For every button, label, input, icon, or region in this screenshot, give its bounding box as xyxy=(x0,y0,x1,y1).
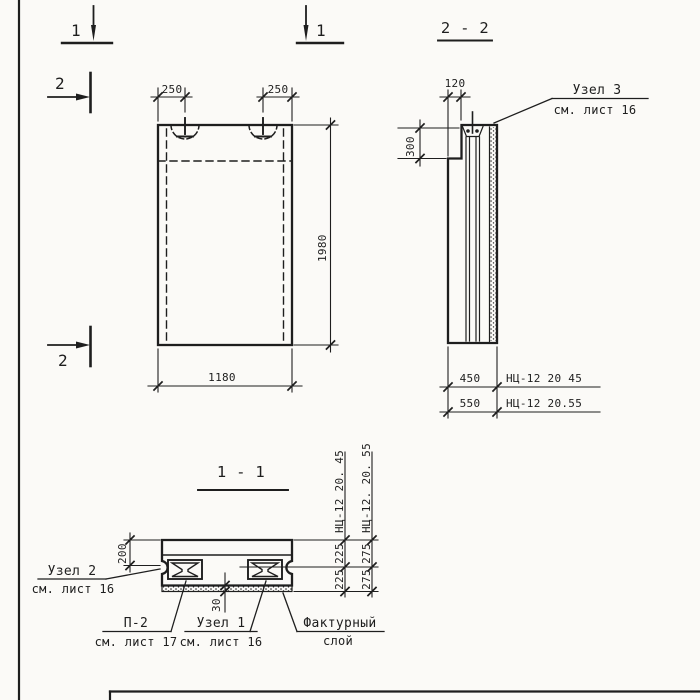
lifting-loop-right xyxy=(249,118,277,139)
front-view-dim-1180: 1180 xyxy=(148,349,302,392)
callout-node-2-ref: см. лист 16 xyxy=(32,582,115,596)
col-b-dim-1: 275 xyxy=(360,543,373,564)
channel-right xyxy=(248,560,282,579)
callout-p2-ref: см. лист 17 xyxy=(95,635,178,649)
section-2-2-title: 2 - 2 xyxy=(441,19,489,37)
callout-node-1-title: Узел 1 xyxy=(197,616,246,631)
callout-node-2: Узел 2 см. лист 16 xyxy=(32,564,160,596)
dim-1980-value: 1980 xyxy=(316,234,329,262)
section-marker-2-bottom-label: 2 xyxy=(58,351,68,370)
callout-node-3-title: Узел 3 xyxy=(573,83,622,98)
dim-450-value: 450 xyxy=(460,372,481,385)
callout-facing-layer: Фактурный слой xyxy=(283,593,384,648)
callout-facing-ref: слой xyxy=(323,634,353,648)
col-a-dim-2: 225 xyxy=(333,569,346,590)
front-view-hidden-edges xyxy=(158,129,292,343)
dim-120-value: 120 xyxy=(445,77,466,90)
col-a-dim-1: 225 xyxy=(333,543,346,564)
channel-left xyxy=(168,560,202,579)
section-marker-1-left: 1 xyxy=(62,6,112,43)
section-marker-1-left-label: 1 xyxy=(71,21,81,40)
section-2-2: 2 - 2 120 300 xyxy=(398,19,648,418)
dim-250-left-value: 250 xyxy=(162,83,183,96)
front-view-dim-250-left: 250 xyxy=(151,83,192,121)
lifting-loop-left xyxy=(171,118,199,139)
callout-facing-title: Фактурный xyxy=(303,616,376,631)
section-1-1: 1 - 1 200 30 xyxy=(32,443,384,649)
drawing-sheet: 1 1 2 2 xyxy=(0,0,700,700)
section-1-1-dim-30: 30 xyxy=(210,573,229,612)
section-1-1-dim-200: 200 xyxy=(116,533,160,572)
front-view: 250 250 1980 1180 xyxy=(148,83,338,392)
section-2-2-dim-rows: 450 НЦ-12 20 45 550 НЦ-12 20.55 xyxy=(440,347,600,418)
front-view-dim-250-right: 250 xyxy=(257,83,299,121)
dim-250-right-value: 250 xyxy=(268,83,289,96)
front-view-dim-1980: 1980 xyxy=(294,118,338,352)
section-marker-2-top: 2 xyxy=(48,73,91,112)
section-marker-2-top-label: 2 xyxy=(55,74,65,93)
section-marker-1-right-label: 1 xyxy=(316,21,326,40)
section-2-2-facing-layer xyxy=(490,127,497,342)
callout-node-3-ref: см. лист 16 xyxy=(554,103,637,117)
dim-200-value: 200 xyxy=(116,543,129,564)
type-label-450: НЦ-12 20 45 xyxy=(506,372,582,385)
section-marker-1-right: 1 xyxy=(297,6,343,43)
type-label-550: НЦ-12 20.55 xyxy=(506,397,582,410)
callout-node-2-title: Узел 2 xyxy=(48,564,97,579)
section-marker-2-bottom: 2 xyxy=(48,327,91,370)
section-2-2-lifting-loop xyxy=(466,112,479,133)
front-view-outline xyxy=(158,125,292,345)
dim-30-value: 30 xyxy=(210,598,223,612)
callout-p2-title: П-2 xyxy=(124,616,148,631)
dim-300-value: 300 xyxy=(404,136,417,157)
col-a-type-label: НЦ-12 20. 45 xyxy=(333,450,346,533)
col-b-type-label: НЦ-12. 20. 55 xyxy=(360,443,373,533)
dim-550-value: 550 xyxy=(460,397,481,410)
callout-node-3: Узел 3 см. лист 16 xyxy=(494,83,648,123)
callout-node-1-ref: см. лист 16 xyxy=(180,635,263,649)
dim-1180-value: 1180 xyxy=(208,371,236,384)
col-b-dim-2: 275 xyxy=(360,569,373,590)
section-1-1-title: 1 - 1 xyxy=(217,463,265,481)
section-2-2-channel-lines xyxy=(463,127,484,342)
